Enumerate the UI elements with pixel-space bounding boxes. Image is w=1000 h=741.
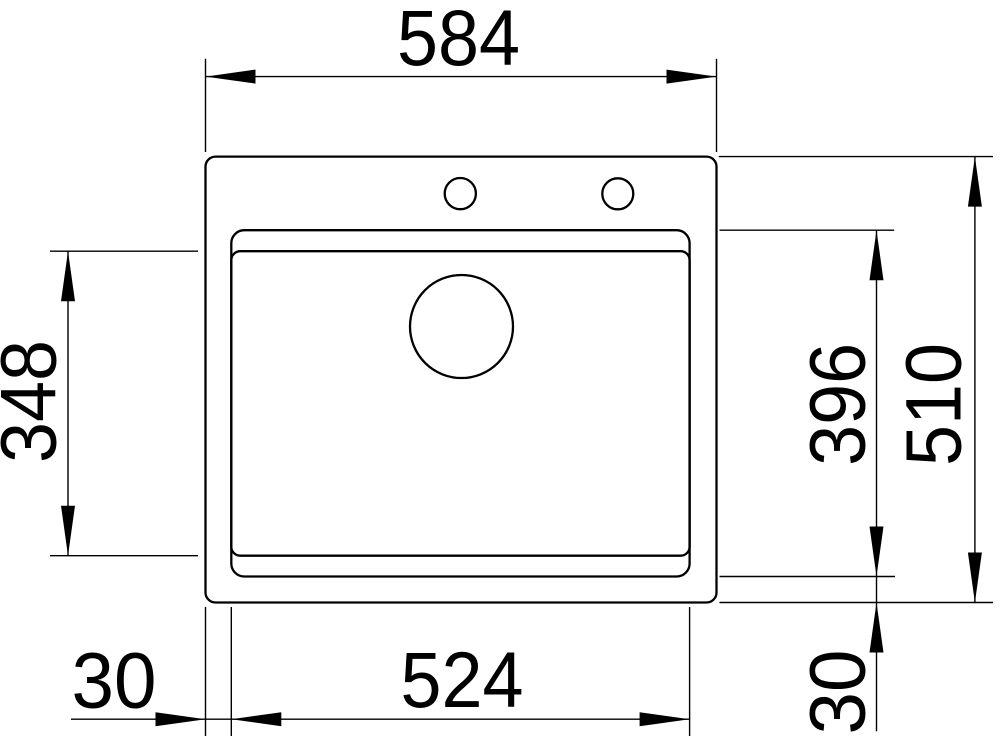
svg-text:510: 510: [889, 343, 978, 466]
svg-text:30: 30: [72, 636, 157, 725]
svg-text:584: 584: [397, 0, 520, 82]
svg-text:524: 524: [401, 635, 524, 724]
svg-text:30: 30: [793, 650, 882, 735]
svg-text:396: 396: [793, 343, 882, 466]
svg-text:348: 348: [0, 340, 73, 463]
